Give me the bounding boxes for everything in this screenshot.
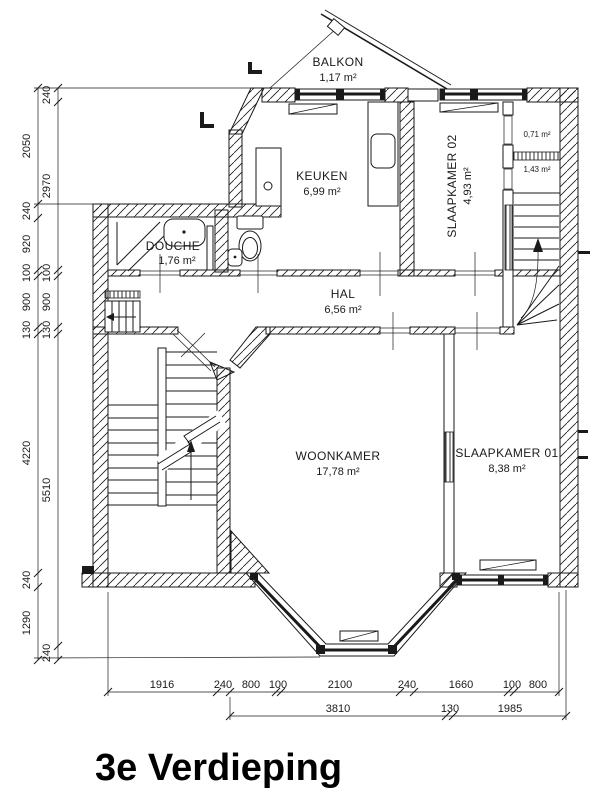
label-balkon-area: 1,17 m² bbox=[319, 72, 357, 84]
label-hal-area: 6,56 m² bbox=[324, 304, 362, 316]
label-keuken: KEUKEN bbox=[296, 169, 348, 183]
dim-bottom2-0: 3810 bbox=[326, 703, 350, 715]
label-slaapkamer02-area: 4,93 m² bbox=[462, 167, 474, 205]
dim-bottom1-3: 100 bbox=[269, 679, 287, 691]
kitchen-counter-left bbox=[256, 148, 281, 206]
kitchen-stove bbox=[371, 134, 395, 168]
dim-left-outer-7: 240 bbox=[21, 571, 33, 589]
shower-screen bbox=[207, 226, 213, 270]
dim-left-outer-3: 100 bbox=[21, 264, 33, 282]
slaapkamer02-window bbox=[440, 89, 527, 100]
dim-left-inner-0: 240 bbox=[41, 86, 53, 104]
dim-left-inner-2: 100 bbox=[41, 264, 53, 282]
dim-bottom1-8: 800 bbox=[529, 679, 547, 691]
slaapkamer01-window bbox=[457, 575, 548, 585]
dim-bottom2-2: 1985 bbox=[498, 703, 522, 715]
dim-bottom1-0: 1916 bbox=[150, 679, 174, 691]
dim-left-outer-5: 130 bbox=[21, 321, 33, 339]
entry-steps bbox=[105, 301, 140, 332]
dim-left-outer-4: 900 bbox=[21, 293, 33, 311]
dim-bottom1-1: 240 bbox=[214, 679, 232, 691]
dim-bottom1-5: 240 bbox=[398, 679, 416, 691]
label-balkon: BALKON bbox=[312, 55, 363, 69]
dim-left-inner-4: 130 bbox=[41, 321, 53, 339]
floor-plan-page: 2050 240 920 100 900 130 4220 240 1290 2… bbox=[0, 0, 609, 800]
dim-bottom1-6: 1660 bbox=[449, 679, 473, 691]
label-woonkamer: WOONKAMER bbox=[296, 449, 381, 463]
dim-left-inner-6: 240 bbox=[41, 644, 53, 662]
floor-plan-drawing: 2050 240 920 100 900 130 4220 240 1290 2… bbox=[0, 0, 609, 800]
label-woonkamer-area: 17,78 m² bbox=[316, 466, 360, 478]
label-slaapkamer02: SLAAPKAMER 02 bbox=[445, 134, 459, 237]
dim-bottom1-2: 800 bbox=[242, 679, 260, 691]
balcony-door-window bbox=[295, 89, 385, 100]
dim-bottom2-1: 130 bbox=[441, 703, 459, 715]
label-slaapkamer01-area: 8,38 m² bbox=[488, 463, 526, 475]
dim-bottom1-7: 100 bbox=[503, 679, 521, 691]
drawing-title: 3e Verdieping bbox=[95, 747, 342, 789]
dim-left-outer-8: 1290 bbox=[21, 611, 33, 635]
dim-left-inner-3: 900 bbox=[41, 293, 53, 311]
dim-left-outer-0: 2050 bbox=[21, 134, 33, 158]
toilet-tank bbox=[237, 216, 263, 229]
label-kast-klein-area: 0,71 m² bbox=[523, 130, 550, 139]
label-douche: DOUCHE bbox=[146, 239, 200, 253]
label-hal: HAL bbox=[331, 287, 356, 301]
label-keuken-area: 6,99 m² bbox=[303, 186, 341, 198]
label-douche-area: 1,76 m² bbox=[158, 255, 196, 267]
dim-left-outer-6: 4220 bbox=[21, 441, 33, 465]
dim-bottom1-4: 2100 bbox=[328, 679, 352, 691]
label-kast-groot-area: 1,43 m² bbox=[523, 165, 550, 174]
label-slaapkamer01: SLAAPKAMER 01 bbox=[455, 446, 558, 460]
kitchen-sink bbox=[264, 182, 272, 190]
dim-left-outer-2: 920 bbox=[21, 235, 33, 253]
dim-left-inner-1: 2970 bbox=[41, 174, 53, 198]
dim-left-inner-5: 5510 bbox=[41, 478, 53, 502]
dim-left-outer-1: 240 bbox=[21, 202, 33, 220]
